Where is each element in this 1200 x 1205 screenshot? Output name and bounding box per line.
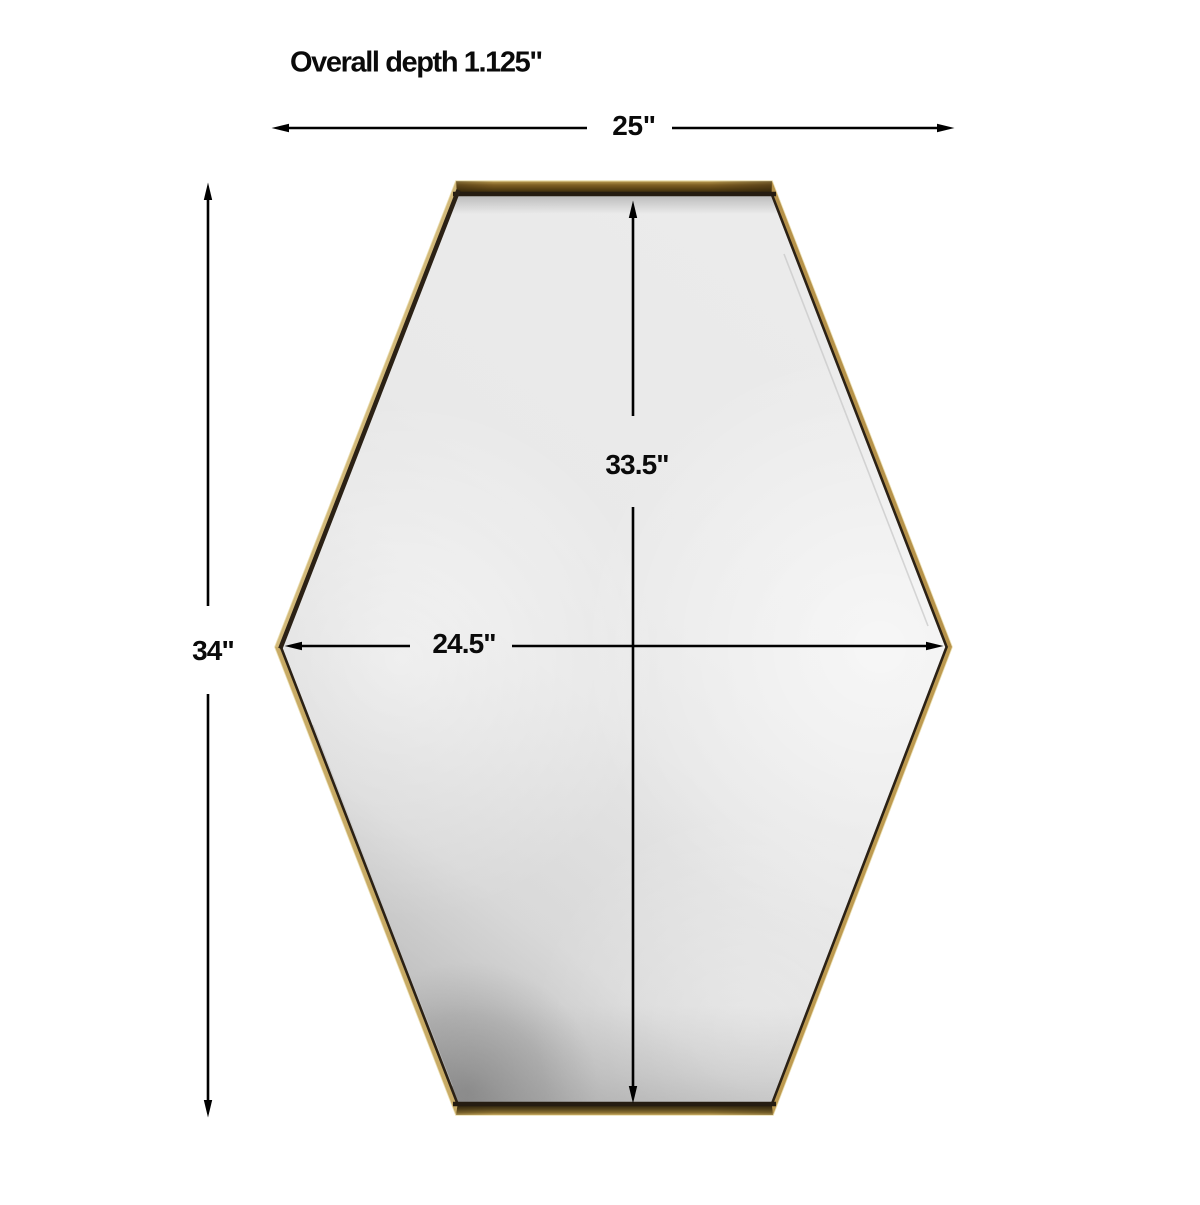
svg-text:34": 34" [192,635,234,666]
svg-text:24.5": 24.5" [432,628,495,659]
svg-text:33.5": 33.5" [605,449,668,480]
svg-text:Overall depth 1.125": Overall depth 1.125" [290,47,542,79]
svg-text:25": 25" [612,110,656,141]
